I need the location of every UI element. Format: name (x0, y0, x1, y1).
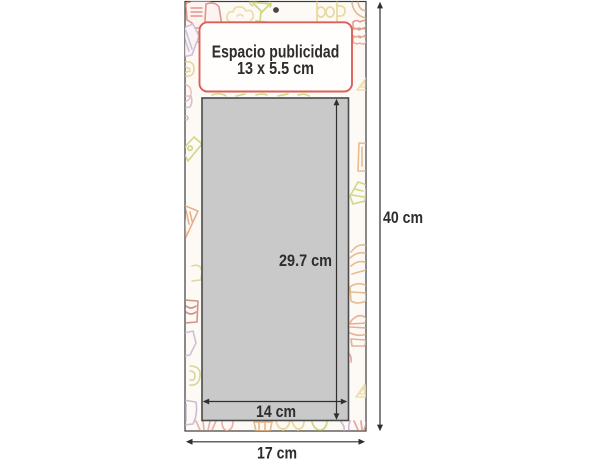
svg-text:40 cm: 40 cm (383, 208, 423, 227)
svg-text:14 cm: 14 cm (256, 402, 296, 421)
svg-text:29.7 cm: 29.7 cm (279, 251, 332, 270)
svg-text:17 cm: 17 cm (257, 444, 297, 460)
svg-text:13 x 5.5 cm: 13 x 5.5 cm (237, 58, 314, 78)
